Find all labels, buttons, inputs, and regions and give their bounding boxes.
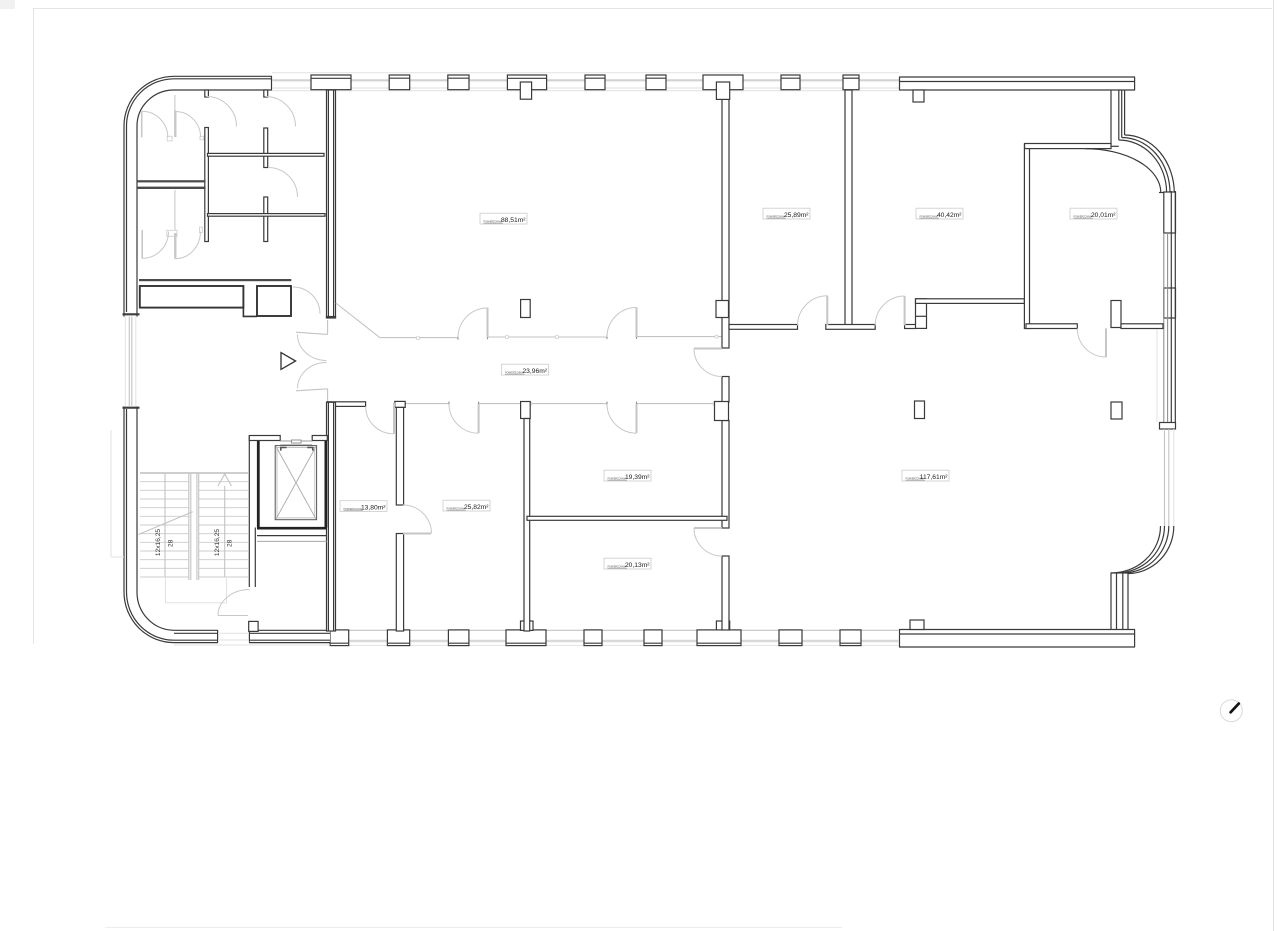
svg-text:88,51m²: 88,51m² <box>501 217 526 224</box>
svg-text:28: 28 <box>167 539 174 547</box>
svg-text:20,01m²: 20,01m² <box>1091 212 1116 219</box>
svg-text:20,13m²: 20,13m² <box>625 562 650 569</box>
svg-text:19,39m²: 19,39m² <box>625 474 650 481</box>
svg-text:117,61m²: 117,61m² <box>920 474 949 481</box>
svg-text:12x16,25: 12x16,25 <box>214 529 221 556</box>
svg-text:28: 28 <box>226 539 233 547</box>
svg-text:40,42m²: 40,42m² <box>937 212 962 219</box>
svg-text:13,80m²: 13,80m² <box>361 505 386 512</box>
svg-text:25,89m²: 25,89m² <box>784 212 809 219</box>
svg-text:12x16,25: 12x16,25 <box>155 529 162 556</box>
svg-text:25,82m²: 25,82m² <box>464 504 489 511</box>
svg-text:23,96m²: 23,96m² <box>522 368 547 375</box>
